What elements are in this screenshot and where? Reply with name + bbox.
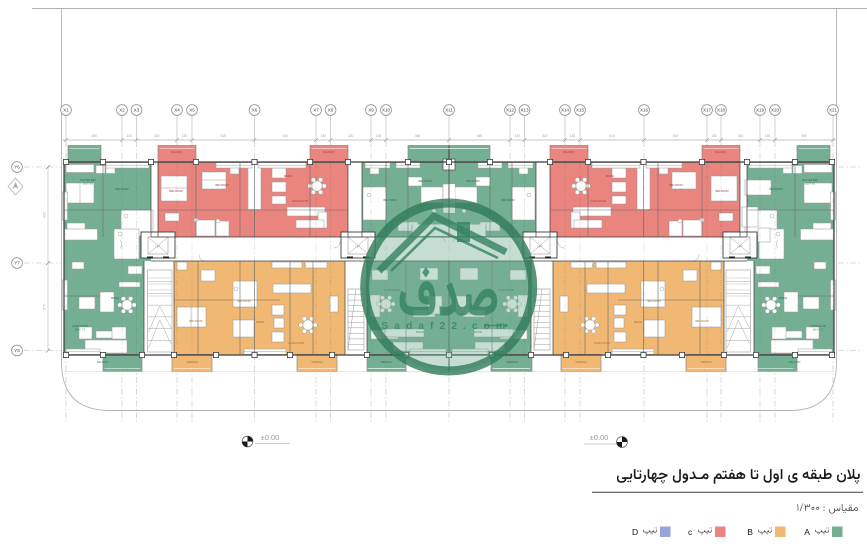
svg-text:BED ROOM: BED ROOM: [501, 199, 514, 202]
svg-text:BED ROOM: BED ROOM: [669, 184, 682, 187]
svg-text:BALCONY: BALCONY: [715, 151, 727, 154]
svg-text:X11: X11: [445, 108, 453, 113]
svg-text:DINING: DINING: [634, 321, 643, 324]
svg-text:TERRACE: TERRACE: [506, 361, 518, 364]
svg-text:X6: X6: [252, 108, 258, 113]
svg-text:TERRACE: TERRACE: [380, 361, 392, 364]
svg-text:LIFT: LIFT: [355, 245, 361, 249]
svg-text:A: A: [804, 527, 810, 537]
svg-text:320: 320: [738, 134, 744, 138]
svg-text:Y6: Y6: [14, 165, 20, 170]
svg-text:16.5 / 5.0: 16.5 / 5.0: [83, 183, 94, 186]
svg-text:X4: X4: [174, 108, 180, 113]
svg-text:X7: X7: [313, 108, 319, 113]
svg-text:BALCONY: BALCONY: [323, 151, 335, 154]
svg-text:X13: X13: [520, 108, 529, 113]
svg-text:X20: X20: [771, 108, 780, 113]
svg-text:X15: X15: [576, 108, 585, 113]
svg-text:±0.00: ±0.00: [590, 433, 609, 442]
svg-text:515: 515: [673, 134, 679, 138]
svg-text:510: 510: [283, 134, 289, 138]
svg-text:LIVING ROOM: LIVING ROOM: [594, 342, 610, 345]
svg-text:BED ROOM: BED ROOM: [169, 190, 182, 193]
svg-text:875: 875: [43, 304, 47, 310]
svg-text:320: 320: [154, 134, 160, 138]
svg-text:DINING: DINING: [111, 297, 120, 300]
svg-text:c: c: [688, 527, 693, 537]
svg-text:130: 130: [765, 134, 771, 138]
svg-text:28.4 / 7.2: 28.4 / 7.2: [75, 329, 86, 332]
svg-text:130: 130: [711, 134, 717, 138]
svg-text:320: 320: [348, 134, 354, 138]
svg-text:X19: X19: [756, 108, 765, 113]
svg-text:X5: X5: [189, 108, 195, 113]
svg-text:TERRACE: TERRACE: [700, 361, 712, 364]
svg-text:130: 130: [127, 134, 133, 138]
svg-text:BED ROOM: BED ROOM: [383, 199, 396, 202]
svg-text:DINING: DINING: [284, 175, 293, 178]
svg-text:X10: X10: [382, 108, 391, 113]
svg-text:DINING: DINING: [606, 175, 615, 178]
svg-text:X21: X21: [829, 108, 838, 113]
svg-text:X2: X2: [119, 108, 125, 113]
svg-text:X14: X14: [561, 108, 570, 113]
svg-text:28.4 / 7.2: 28.4 / 7.2: [813, 329, 824, 332]
svg-text:±0.00: ±0.00: [261, 433, 280, 442]
svg-text:TERRACE: TERRACE: [186, 361, 198, 364]
svg-text:320: 320: [542, 134, 548, 138]
svg-text:BED ROOM: BED ROOM: [715, 190, 728, 193]
svg-text:BALCONY: BALCONY: [97, 361, 109, 364]
svg-text:LIVING ROOM: LIVING ROOM: [590, 200, 606, 203]
svg-text:X1: X1: [63, 108, 69, 113]
svg-text:465: 465: [477, 134, 483, 138]
svg-text:BED ROOM: BED ROOM: [695, 320, 708, 323]
svg-text:BED ROOM: BED ROOM: [237, 300, 250, 303]
svg-text:X3: X3: [134, 108, 140, 113]
svg-text:BALCONY: BALCONY: [789, 361, 801, 364]
svg-text:BED ROOM: BED ROOM: [647, 300, 660, 303]
svg-text:DINING: DINING: [779, 297, 788, 300]
svg-text:LIFT: LIFT: [155, 245, 161, 249]
svg-text:Y8: Y8: [14, 348, 20, 353]
svg-text:BED ROOM: BED ROOM: [769, 188, 782, 191]
svg-text:X9: X9: [368, 108, 374, 113]
svg-text:X16: X16: [640, 108, 649, 113]
svg-text:130: 130: [321, 134, 327, 138]
svg-text:DINING: DINING: [256, 321, 265, 324]
svg-text:Y7: Y7: [14, 261, 20, 266]
svg-text:130: 130: [570, 134, 576, 138]
svg-text:16.5 / 5.0: 16.5 / 5.0: [805, 183, 816, 186]
svg-text:LIVING ROOM: LIVING ROOM: [292, 200, 308, 203]
svg-text:TERRACE: TERRACE: [575, 361, 587, 364]
svg-text:BALCONY: BALCONY: [171, 151, 183, 154]
svg-text:LIFT: LIFT: [737, 245, 743, 249]
svg-text:130: 130: [376, 134, 382, 138]
svg-text:B: B: [747, 527, 753, 537]
svg-text:TERRACE: TERRACE: [311, 361, 323, 364]
svg-text:960: 960: [43, 212, 47, 218]
svg-text:BED ROOM: BED ROOM: [466, 180, 479, 183]
svg-text:BED ROOM: BED ROOM: [215, 184, 228, 187]
svg-text:510: 510: [609, 134, 615, 138]
svg-text:X18: X18: [717, 108, 726, 113]
svg-text:D: D: [632, 527, 638, 537]
svg-text:BALCONY: BALCONY: [563, 151, 575, 154]
svg-text:X8: X8: [328, 108, 334, 113]
svg-text:465: 465: [801, 134, 807, 138]
svg-text:X12: X12: [506, 108, 515, 113]
svg-text:465: 465: [415, 134, 421, 138]
svg-text:465: 465: [91, 134, 97, 138]
svg-text:130: 130: [515, 134, 521, 138]
svg-text:LIFT: LIFT: [537, 245, 543, 249]
svg-text:130: 130: [182, 134, 188, 138]
svg-text:LIVING ROOM: LIVING ROOM: [288, 342, 304, 345]
svg-text:515: 515: [221, 134, 227, 138]
svg-text:X17: X17: [703, 108, 712, 113]
svg-text:BED ROOM: BED ROOM: [418, 180, 431, 183]
svg-text:BED ROOM: BED ROOM: [189, 320, 202, 323]
